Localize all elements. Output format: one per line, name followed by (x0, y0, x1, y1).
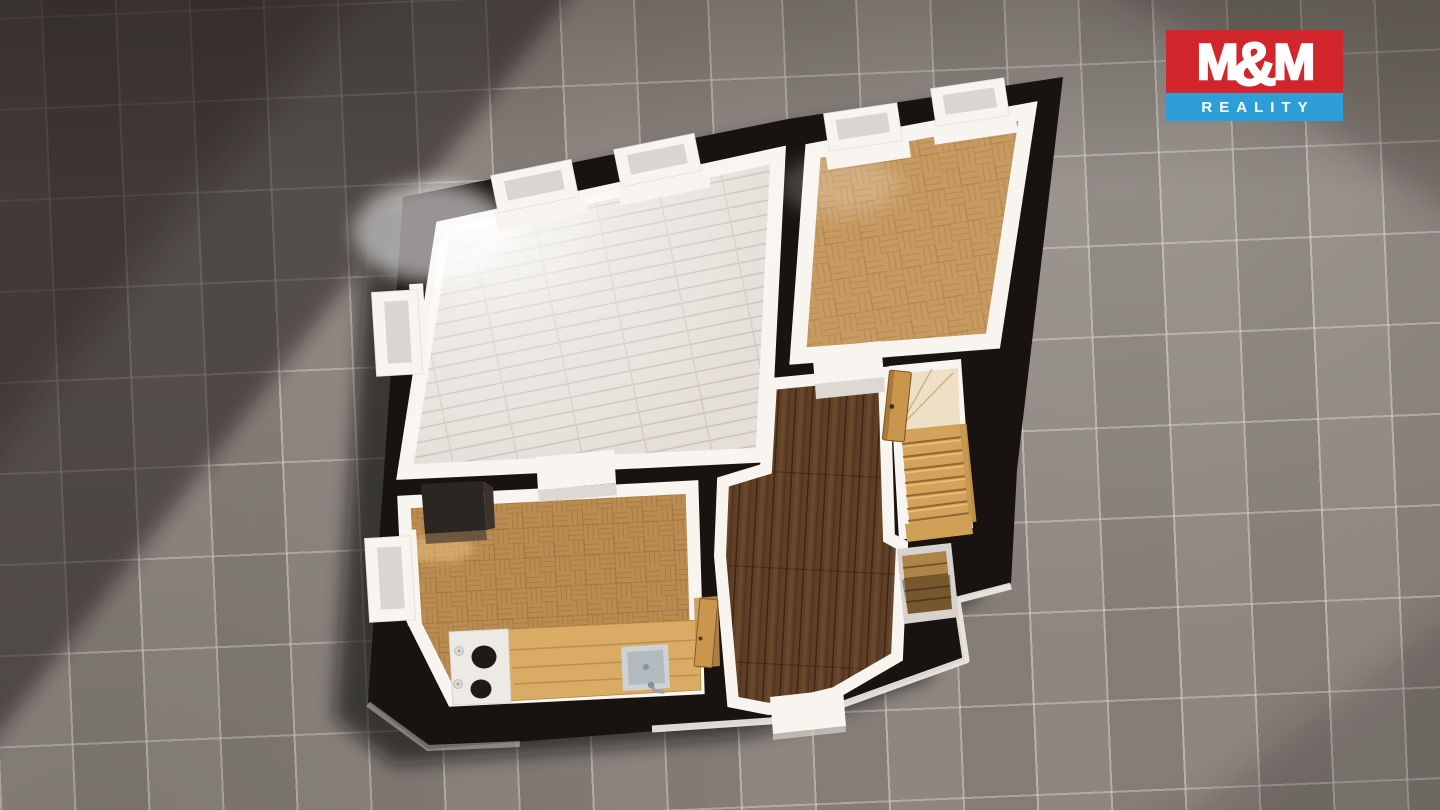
logo-letter-m-left: M (1197, 37, 1236, 87)
burner-icon (471, 680, 492, 699)
door-bedroom-hall (812, 341, 885, 399)
kitchen-counter (449, 620, 701, 705)
door-block (812, 341, 884, 384)
door-living-kitchen (536, 450, 617, 502)
mm-reality-logo: M & M REALITY (1166, 30, 1343, 121)
cabinet-top (421, 481, 486, 534)
stove-knob-dot (458, 650, 460, 652)
logo-reality-box: REALITY (1166, 93, 1343, 121)
window (364, 529, 422, 628)
window (371, 283, 429, 382)
lower-stair-ambient (897, 543, 959, 624)
faucet-base (648, 682, 654, 688)
window-glass (377, 546, 405, 609)
sink-drain-icon (643, 664, 649, 670)
sun-bloom (354, 182, 510, 282)
logo-reality-text: REALITY (1201, 99, 1314, 116)
logo-mm-box: M & M (1166, 30, 1343, 93)
front-door (770, 689, 846, 740)
window-glass (384, 300, 412, 363)
floorplan-render (0, 0, 1440, 810)
sink (621, 644, 670, 692)
real-estate-render: M & M REALITY (0, 0, 1440, 810)
stove-knob-dot (457, 683, 459, 685)
stove (449, 629, 511, 705)
logo-letter-m-right: M (1274, 37, 1313, 87)
burner-icon (472, 646, 497, 669)
shade-bottom-right (1100, 560, 1440, 810)
kitchen-hall-doorway (694, 596, 720, 668)
door-block (536, 450, 616, 490)
staircase-lower (897, 543, 959, 624)
logo-ampersand: & (1232, 34, 1276, 93)
kitchen-cabinet (421, 481, 495, 544)
